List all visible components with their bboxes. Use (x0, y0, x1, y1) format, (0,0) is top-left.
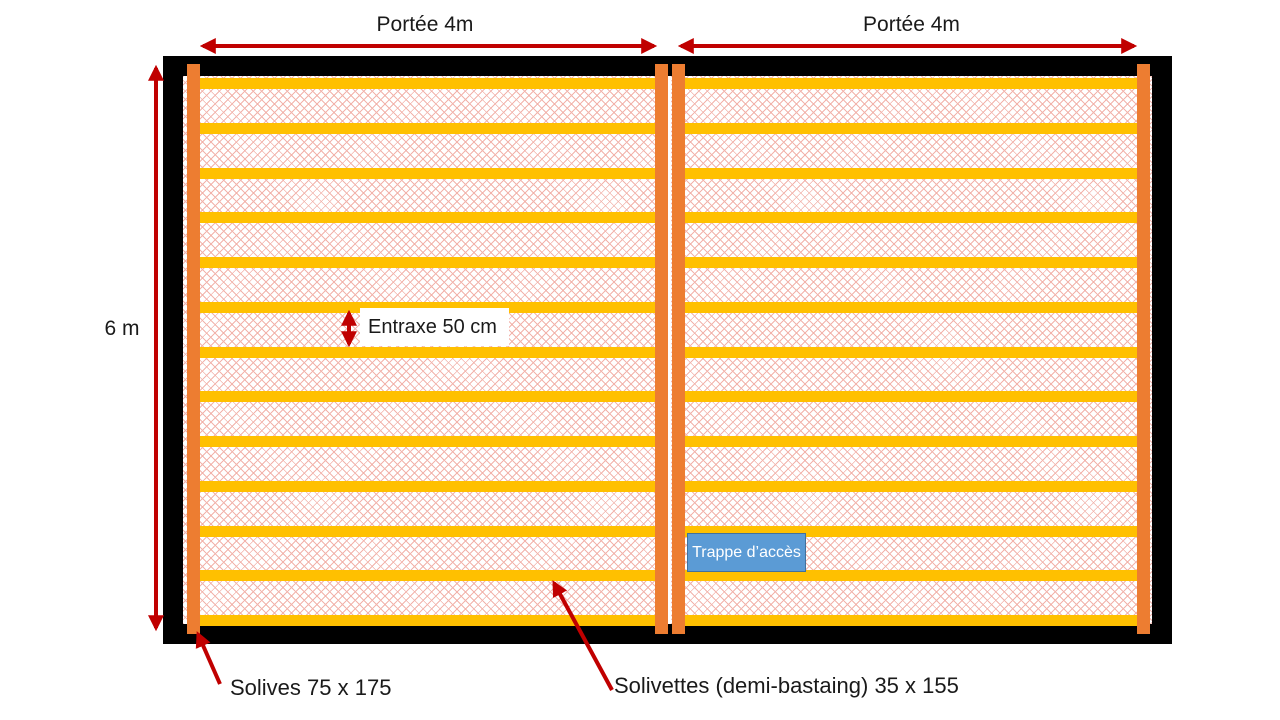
solivette-bar (195, 168, 665, 179)
joist-label: Solives 75 x 175 (230, 675, 391, 701)
solivette-bar (676, 615, 1147, 626)
solivette-bar (676, 302, 1147, 313)
access-hatch: Trappe d’accès (687, 533, 806, 572)
floor-panel-left (183, 76, 667, 624)
span-left-label: Portée 4m (183, 13, 667, 37)
solivette-bar (195, 257, 665, 268)
joist-plan-diagram: Trappe d’accès Portée 4m Portée 4m 6 m E… (0, 0, 1280, 720)
solive-beam-mid-left (655, 64, 668, 634)
solivette-bar (195, 436, 665, 447)
spacing-label: Entraxe 50 cm (360, 308, 509, 346)
solivette-bar (195, 78, 665, 89)
solivette-bar (676, 123, 1147, 134)
solivette-bar (195, 347, 665, 358)
solive-beam-left (187, 64, 200, 634)
solivette-bar (676, 436, 1147, 447)
solive-beam-right (1137, 64, 1150, 634)
solivette-bar (195, 391, 665, 402)
solivette-bar (676, 168, 1147, 179)
solivette-bar (195, 481, 665, 492)
solivette-bar (195, 615, 665, 626)
subjoist-label: Solivettes (demi-bastaing) 35 x 155 (614, 673, 959, 699)
solivette-bar (676, 78, 1147, 89)
solivette-bar (195, 526, 665, 537)
height-label: 6 m (96, 317, 148, 341)
solivette-bar (676, 347, 1147, 358)
solivette-bar (676, 212, 1147, 223)
solivette-bar (676, 391, 1147, 402)
access-hatch-label: Trappe d’accès (692, 544, 801, 562)
solive-beam-mid-right (672, 64, 685, 634)
solivette-bar (195, 212, 665, 223)
solivette-bar (676, 257, 1147, 268)
solivette-bar (676, 481, 1147, 492)
solivette-bar (195, 123, 665, 134)
span-right-label: Portée 4m (671, 13, 1152, 37)
solivette-bar (195, 570, 665, 581)
